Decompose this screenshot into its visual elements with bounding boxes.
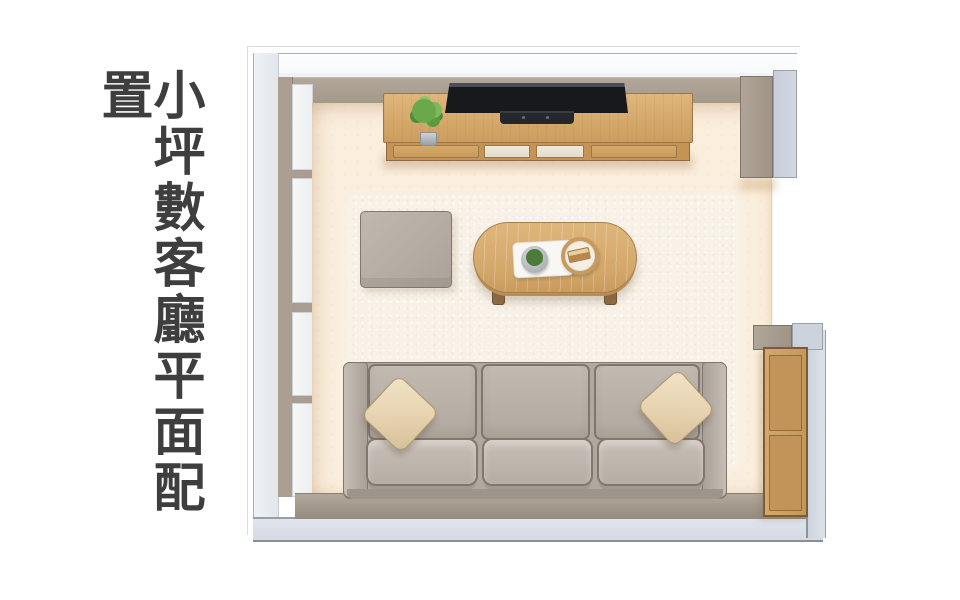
sofa-armrest-left <box>343 362 368 498</box>
table-plant <box>526 249 543 266</box>
ottoman <box>360 211 452 288</box>
wall-right-bottom <box>806 330 826 538</box>
wall-left-outer <box>253 53 279 538</box>
window-pane <box>292 84 313 170</box>
tv-screen <box>445 83 628 113</box>
plant-pot <box>420 132 437 146</box>
sofa-seat-cushion <box>366 438 478 486</box>
wall-bottom-outer <box>253 517 823 542</box>
console-glass-door <box>536 145 584 158</box>
side-cabinet <box>763 347 808 517</box>
sofa-armrest-right <box>702 362 727 498</box>
window-glass-door <box>292 84 313 497</box>
cabinet-door-panel <box>769 435 802 511</box>
floorplan-illustration: 小坪數客廳平面配置 <box>0 0 960 600</box>
sofa-back-cushion <box>481 364 590 440</box>
sofa-seat-cushion <box>597 438 705 486</box>
tv-stand <box>500 111 574 124</box>
column-shadow <box>740 178 776 191</box>
page-title: 小坪數客廳平面配置 <box>88 68 200 538</box>
sofa-seat-cushion <box>482 438 593 486</box>
window-pane <box>292 403 313 497</box>
potted-plant <box>412 99 436 123</box>
floor-opening-edge <box>771 180 773 325</box>
window-frame <box>278 77 293 497</box>
console-glass-door <box>484 145 530 158</box>
column-inner-face <box>740 76 773 178</box>
cabinet-door-panel <box>769 355 802 431</box>
sofa-front-rail <box>347 489 723 499</box>
console-drawer <box>591 145 677 158</box>
cap-outer-face <box>792 323 823 350</box>
console-drawer <box>393 145 479 158</box>
cabinet-wall-cap <box>753 323 823 350</box>
column-outer-face <box>773 70 797 178</box>
wall-top-outer <box>253 53 797 78</box>
window-pane <box>292 312 313 396</box>
structural-column <box>740 70 797 178</box>
window-pane <box>292 178 313 303</box>
